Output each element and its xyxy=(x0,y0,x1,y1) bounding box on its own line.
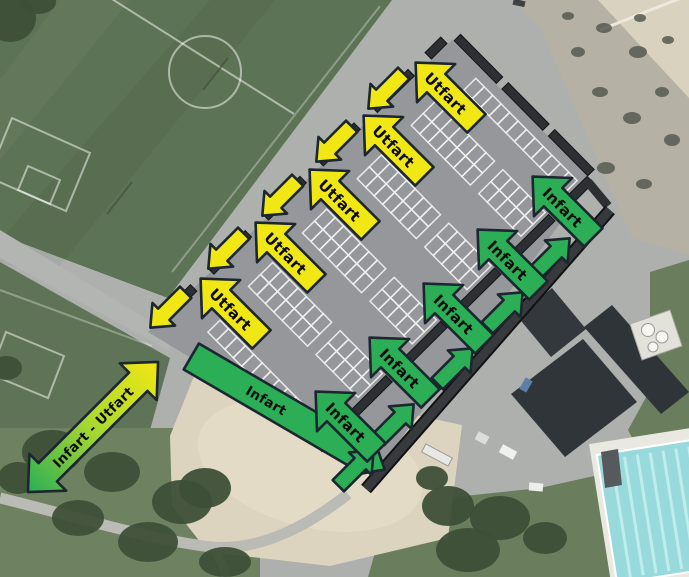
car-white xyxy=(529,482,544,491)
storage-tank xyxy=(648,342,658,352)
parking-traffic-map: Infart Infart - Utfart Utfart Utfart Utf… xyxy=(0,0,689,577)
storage-tank xyxy=(656,331,668,343)
aerial-photo: Infart Infart - Utfart Utfart Utfart Utf… xyxy=(0,0,689,577)
storage-tank xyxy=(642,324,655,337)
